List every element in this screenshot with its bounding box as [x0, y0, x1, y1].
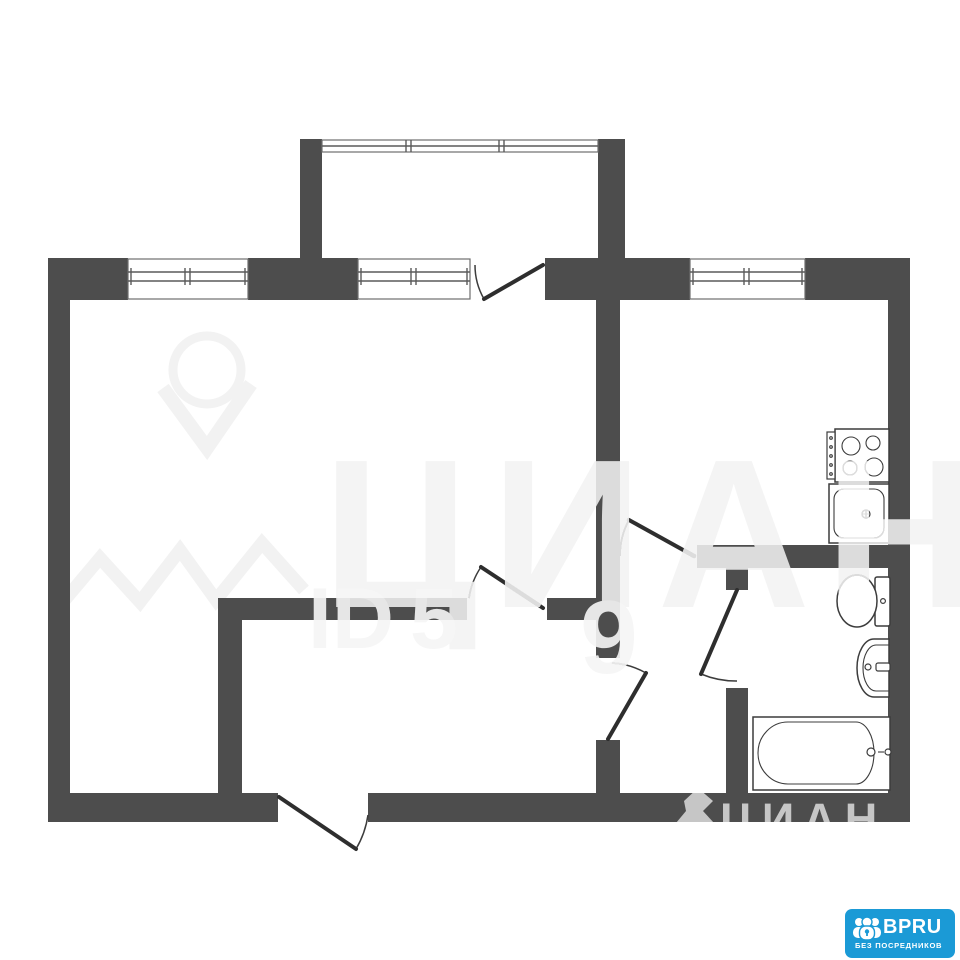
door-inner-room-top	[469, 567, 543, 608]
bathtub	[753, 717, 891, 790]
wall-segment	[545, 258, 690, 300]
door-swing-arc	[475, 265, 484, 299]
door-leaf	[484, 265, 543, 299]
door-inner-room-hall	[608, 663, 646, 739]
doors	[279, 265, 737, 849]
kitchen-sink	[829, 484, 889, 543]
door-balcony	[475, 265, 543, 299]
wall-segment	[48, 793, 278, 822]
wall-segment	[547, 598, 596, 620]
toilet	[837, 575, 890, 627]
door-leaf	[481, 567, 543, 608]
fixtures	[753, 429, 891, 790]
wall-segment	[726, 688, 748, 793]
wall-segment	[726, 568, 748, 590]
wall-segment	[888, 258, 910, 822]
door-leaf	[701, 590, 737, 674]
door-leaf	[279, 797, 356, 849]
bpru-logo-badge: BPRU БЕЗ ПОСРЕДНИКОВ	[845, 909, 955, 958]
wall-segment	[368, 793, 910, 822]
door-entry	[279, 797, 368, 849]
balcony-wall-stub	[300, 139, 322, 258]
door-swing-arc	[469, 567, 481, 598]
stove	[827, 429, 889, 482]
logo-tagline: БЕЗ ПОСРЕДНИКОВ	[855, 941, 942, 950]
window	[128, 259, 248, 299]
door-leaf	[608, 673, 646, 739]
door-bathroom	[701, 590, 737, 681]
wall-segment	[48, 258, 128, 300]
wall-segment	[248, 258, 358, 300]
wall-segment	[805, 258, 910, 300]
windows	[128, 140, 805, 299]
door-swing-arc	[701, 674, 737, 681]
door-kitchen	[620, 520, 694, 556]
wall-segment	[48, 258, 70, 822]
wall-segment	[218, 620, 242, 793]
wall-segment	[697, 545, 890, 568]
balcony-window	[322, 140, 598, 152]
washbasin	[857, 639, 890, 697]
logo-name: BPRU	[883, 916, 942, 939]
door-swing-arc	[356, 815, 368, 849]
wall-segment	[596, 300, 620, 658]
window	[690, 259, 805, 299]
floor-plan-image: ЦИАН ID 5 9	[0, 0, 960, 960]
balcony-wall-stub	[598, 139, 625, 258]
window	[358, 259, 470, 299]
door-leaf	[629, 520, 694, 556]
wall-segment	[596, 740, 620, 793]
wall-segment	[218, 598, 467, 620]
door-swing-arc	[620, 520, 629, 556]
door-swing-arc	[612, 663, 646, 673]
floor-plan	[0, 0, 960, 960]
people-lock-icon	[853, 916, 881, 942]
